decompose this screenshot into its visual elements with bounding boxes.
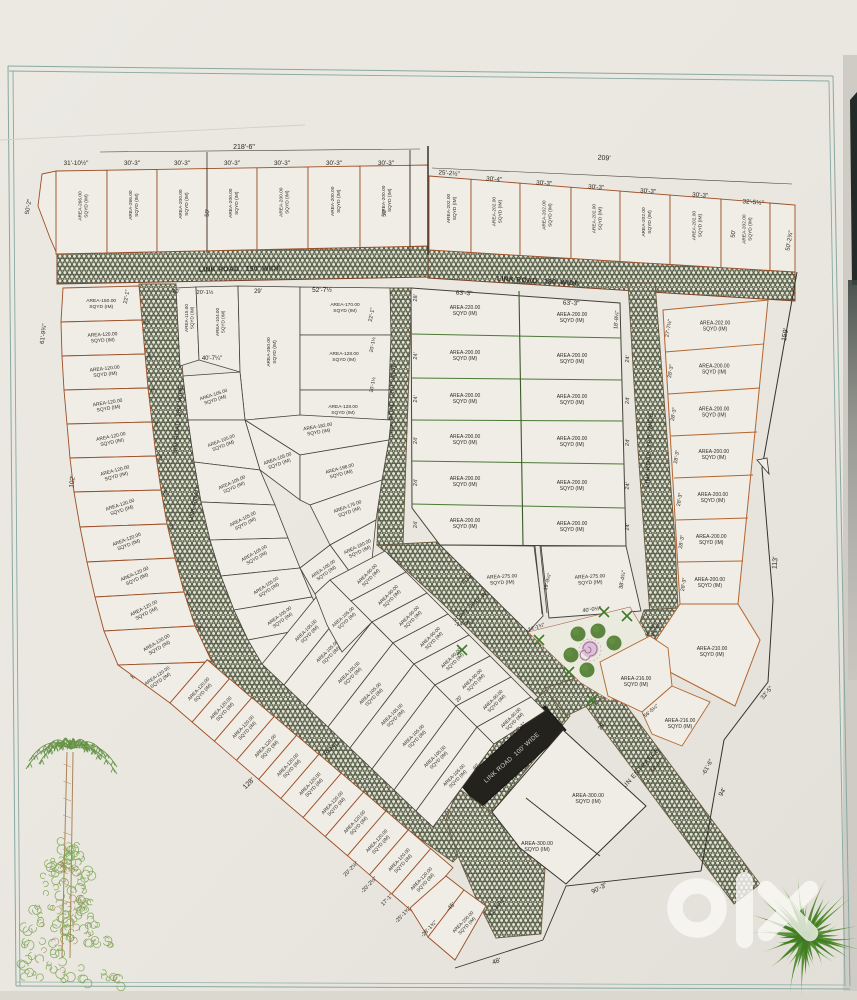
svg-text:SQYD (IM): SQYD (IM) — [547, 203, 553, 227]
svg-text:SQYD (IM): SQYD (IM) — [453, 440, 478, 446]
svg-text:24': 24' — [625, 397, 632, 405]
svg-text:SQYD (IM): SQYD (IM) — [647, 210, 653, 234]
svg-text:SQYD (IM): SQYD (IM) — [524, 847, 550, 853]
svg-text:SQYD (IM): SQYD (IM) — [220, 310, 225, 333]
svg-text:SQYD (IM): SQYD (IM) — [272, 340, 278, 364]
svg-text:SQYD (IM): SQYD (IM) — [234, 191, 240, 215]
svg-text:AREA-300.00: AREA-300.00 — [572, 793, 604, 799]
svg-text:50': 50' — [205, 209, 212, 217]
svg-text:SQYD (IM): SQYD (IM) — [575, 799, 601, 805]
svg-text:SQYD (IM): SQYD (IM) — [560, 486, 585, 492]
svg-text:20': 20' — [163, 488, 170, 495]
svg-text:30'-3": 30'-3" — [326, 160, 342, 167]
svg-text:30'-3": 30'-3" — [378, 160, 394, 167]
svg-text:AREA-202.00: AREA-202.00 — [592, 204, 598, 234]
svg-text:AREA-202.00: AREA-202.00 — [542, 200, 548, 230]
svg-text:20': 20' — [177, 556, 184, 563]
svg-text:SQYD (IM): SQYD (IM) — [333, 308, 357, 314]
svg-text:63'-3": 63'-3" — [563, 300, 581, 308]
svg-text:24': 24' — [625, 355, 632, 363]
svg-text:30'-3": 30'-3" — [588, 183, 604, 191]
svg-text:24': 24' — [625, 523, 632, 531]
svg-text:28': 28' — [413, 294, 419, 301]
svg-text:SQYD (IM): SQYD (IM) — [497, 199, 503, 223]
svg-text:SQYD (IM): SQYD (IM) — [702, 370, 727, 376]
svg-text:AREA-300.00: AREA-300.00 — [521, 841, 553, 847]
svg-text:SQYD (IM): SQYD (IM) — [336, 189, 342, 213]
svg-text:24': 24' — [413, 352, 419, 359]
svg-text:SQYD (IM): SQYD (IM) — [560, 527, 585, 533]
svg-text:AREA-260.00: AREA-260.00 — [266, 337, 272, 367]
svg-text:SQYD (IM): SQYD (IM) — [700, 652, 725, 658]
svg-text:113': 113' — [771, 556, 779, 569]
svg-text:63'-3": 63'-3" — [456, 290, 474, 298]
svg-text:218'-6": 218'-6" — [233, 144, 255, 151]
svg-text:SQYD (IM): SQYD (IM) — [453, 482, 478, 488]
svg-text:50': 50' — [382, 209, 389, 217]
svg-text:20': 20' — [158, 454, 165, 461]
svg-text:24': 24' — [413, 521, 419, 528]
svg-text:AREA-202.00: AREA-202.00 — [492, 197, 498, 227]
svg-text:SQYD (IM): SQYD (IM) — [331, 410, 355, 416]
svg-text:SQYD (IM): SQYD (IM) — [560, 442, 585, 448]
svg-text:20': 20' — [186, 590, 193, 597]
svg-text:AREA-202.00: AREA-202.00 — [742, 214, 748, 244]
svg-text:SQYD (IM): SQYD (IM) — [332, 357, 356, 363]
svg-text:SQYD (IM): SQYD (IM) — [184, 192, 190, 216]
svg-text:SQYD (IM): SQYD (IM) — [703, 327, 728, 333]
svg-text:SQYD (IM): SQYD (IM) — [702, 413, 727, 419]
svg-text:40'-7¼": 40'-7¼" — [202, 356, 222, 362]
svg-text:SQYD (IM): SQYD (IM) — [453, 524, 478, 530]
svg-text:20': 20' — [197, 624, 204, 631]
svg-text:29': 29' — [254, 289, 262, 295]
svg-text:SQYD (IM): SQYD (IM) — [597, 206, 603, 230]
svg-text:30'-3": 30'-3" — [536, 179, 552, 187]
svg-text:24': 24' — [413, 479, 419, 486]
svg-text:SQYD (IM): SQYD (IM) — [560, 359, 585, 365]
svg-text:30'-3": 30'-3" — [124, 160, 140, 167]
svg-text:SQYD (IM): SQYD (IM) — [698, 583, 723, 589]
svg-text:20': 20' — [172, 289, 179, 295]
svg-text:50': 50' — [731, 230, 738, 238]
svg-text:SQYD (IM): SQYD (IM) — [699, 540, 724, 546]
svg-text:AREA-202.00: AREA-202.00 — [641, 207, 647, 237]
svg-text:20'-1½: 20'-1½ — [197, 289, 214, 296]
svg-text:20': 20' — [153, 420, 160, 427]
svg-text:AREA-128.00: AREA-128.00 — [328, 404, 358, 410]
svg-text:AREA-200.00: AREA-200.00 — [178, 189, 184, 219]
svg-text:SQYD (IM): SQYD (IM) — [624, 682, 649, 688]
svg-text:SQYD (IM): SQYD (IM) — [452, 196, 458, 220]
svg-text:AREA-200.00: AREA-200.00 — [330, 186, 336, 216]
svg-text:AREA-200.00: AREA-200.00 — [228, 188, 234, 218]
svg-text:SQYD (IM): SQYD (IM) — [189, 306, 194, 329]
svg-text:AREA-202.00: AREA-202.00 — [446, 194, 452, 224]
svg-text:30'-3": 30'-3" — [174, 160, 190, 167]
svg-text:30'-4": 30'-4" — [486, 175, 502, 183]
svg-text:31'-10½": 31'-10½" — [64, 159, 89, 167]
svg-text:SQYD (IM): SQYD (IM) — [284, 190, 290, 214]
svg-text:24': 24' — [413, 437, 419, 444]
svg-text:102': 102' — [68, 475, 76, 488]
svg-text:AREA-128.00: AREA-128.00 — [329, 351, 359, 357]
svg-text:SQYD (IM): SQYD (IM) — [697, 213, 703, 237]
svg-text:SQYD (IM): SQYD (IM) — [83, 194, 89, 218]
svg-text:30'-3": 30'-3" — [224, 160, 240, 167]
svg-text:209': 209' — [597, 155, 610, 163]
svg-text:AREA-115.00: AREA-115.00 — [184, 304, 189, 332]
svg-text:30'-3": 30'-3" — [274, 160, 290, 167]
svg-text:LINK ROAD 150' WIDE: LINK ROAD 150' WIDE — [199, 265, 282, 273]
svg-text:SQYD (IM): SQYD (IM) — [453, 311, 478, 317]
svg-text:25'-2½": 25'-2½" — [438, 168, 460, 177]
svg-text:24': 24' — [625, 482, 632, 490]
svg-text:SQYD (IM): SQYD (IM) — [387, 188, 393, 212]
svg-text:SQYD (IM): SQYD (IM) — [560, 400, 585, 406]
svg-text:30'-3": 30'-3" — [640, 187, 656, 195]
svg-text:AREA-170.00: AREA-170.00 — [330, 302, 360, 308]
svg-text:SQYD (IM): SQYD (IM) — [668, 724, 693, 730]
svg-text:32'-5½": 32'-5½" — [742, 197, 764, 206]
svg-text:20': 20' — [169, 522, 176, 529]
svg-text:SQYD (IM): SQYD (IM) — [747, 217, 753, 241]
svg-text:24': 24' — [625, 439, 632, 447]
svg-text:AREA-266.00: AREA-266.00 — [128, 190, 134, 220]
svg-text:AREA-200.00: AREA-200.00 — [279, 187, 285, 217]
svg-text:SQYD (IM): SQYD (IM) — [701, 498, 726, 504]
svg-text:SQYD (IM): SQYD (IM) — [702, 455, 727, 461]
svg-text:52'-7½: 52'-7½ — [312, 286, 332, 294]
svg-text:AREA-266.00: AREA-266.00 — [78, 191, 84, 221]
svg-text:SQYD (IM): SQYD (IM) — [560, 318, 585, 324]
svg-text:SQYD (IM): SQYD (IM) — [89, 304, 113, 310]
svg-text:AREA-150.00: AREA-150.00 — [86, 298, 116, 304]
svg-text:30'-3": 30'-3" — [692, 191, 708, 199]
svg-text:SQYD (IM): SQYD (IM) — [453, 356, 478, 362]
svg-text:SQYD (IM): SQYD (IM) — [134, 193, 140, 217]
svg-text:SQYD (IM): SQYD (IM) — [453, 399, 478, 405]
svg-text:AREA-104.00: AREA-104.00 — [215, 308, 220, 337]
svg-text:24': 24' — [413, 395, 419, 402]
svg-text:AREA-202.00: AREA-202.00 — [692, 211, 698, 241]
